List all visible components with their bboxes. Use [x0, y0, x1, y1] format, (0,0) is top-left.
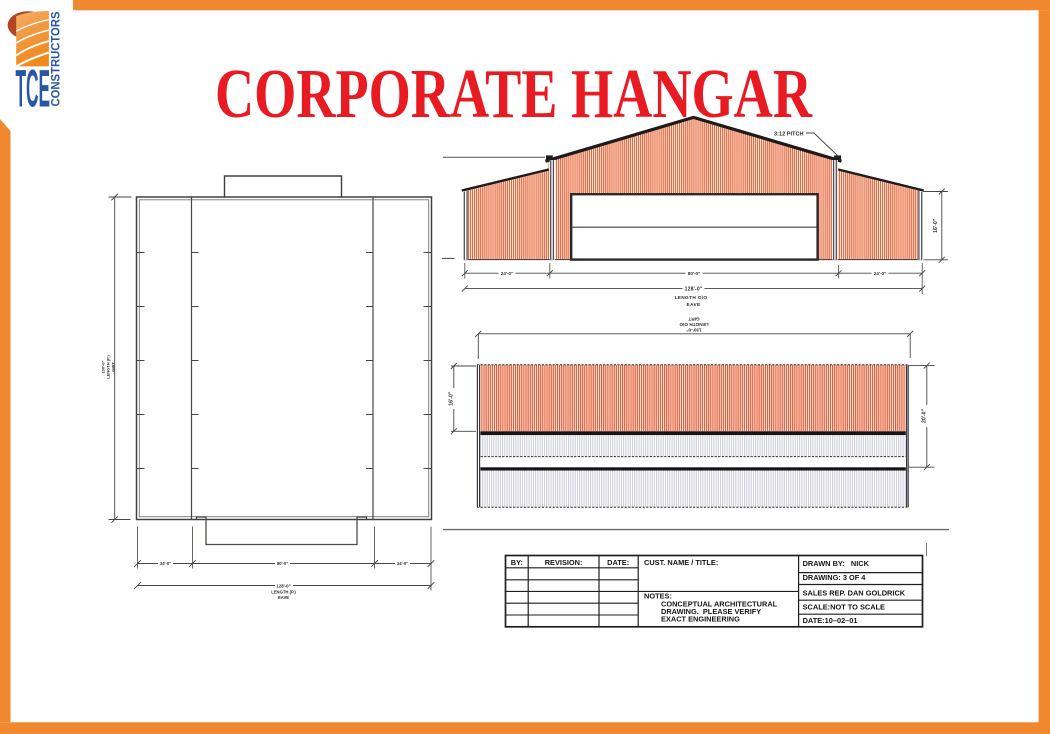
- svg-text:24'-0": 24'-0": [397, 561, 408, 566]
- svg-text:80'-0": 80'-0": [688, 271, 700, 276]
- svg-text:CONSTRUCTORS: CONSTRUCTORS: [49, 12, 63, 107]
- svg-text:24'-0": 24'-0": [160, 561, 171, 566]
- svg-text:24'-0": 24'-0": [874, 271, 886, 276]
- svg-text:3:12 PITCH: 3:12 PITCH: [774, 132, 804, 138]
- svg-text:EAVE: EAVE: [278, 595, 289, 600]
- svg-text:EAVE: EAVE: [687, 302, 701, 308]
- svg-text:DRAWN BY: NICK: DRAWN BY: NICK: [803, 559, 870, 568]
- svg-text:128'-0": 128'-0": [276, 583, 290, 588]
- svg-text:16'-0": 16'-0": [448, 391, 454, 406]
- svg-text:SALES REP. DAN GOLDRICK: SALES REP. DAN GOLDRICK: [803, 588, 906, 597]
- svg-text:24'-0": 24'-0": [501, 271, 513, 276]
- svg-text:130'-0": 130'-0": [686, 328, 701, 333]
- svg-text:TCE: TCE: [16, 60, 51, 119]
- svg-text:GIRT: GIRT: [111, 362, 116, 372]
- svg-text:80'-0": 80'-0": [277, 561, 288, 566]
- svg-text:20'-0": 20'-0": [921, 408, 927, 423]
- svg-text:REVISION:: REVISION:: [545, 558, 583, 567]
- svg-text:CORPORATE HANGAR: CORPORATE HANGAR: [215, 56, 813, 133]
- svg-text:16'-0": 16'-0": [933, 218, 939, 233]
- svg-text:LENGTH O\O: LENGTH O\O: [679, 322, 709, 327]
- svg-text:BY:: BY:: [511, 558, 523, 567]
- svg-text:128'-0": 128'-0": [685, 287, 703, 293]
- svg-text:SCALE:NOT TO SCALE: SCALE:NOT TO SCALE: [803, 603, 885, 612]
- svg-text:GIRT: GIRT: [688, 317, 699, 322]
- svg-text:DATE:: DATE:: [607, 558, 629, 567]
- svg-text:CUST. NAME / TITLE:: CUST. NAME / TITLE:: [644, 558, 718, 567]
- svg-text:DATE:10–02–01: DATE:10–02–01: [803, 616, 858, 625]
- svg-text:EXACT ENGINEERING: EXACT ENGINEERING: [661, 615, 740, 624]
- svg-text:DRAWING: 3 OF 4: DRAWING: 3 OF 4: [803, 573, 867, 582]
- svg-text:LENGTH O\O: LENGTH O\O: [675, 295, 708, 301]
